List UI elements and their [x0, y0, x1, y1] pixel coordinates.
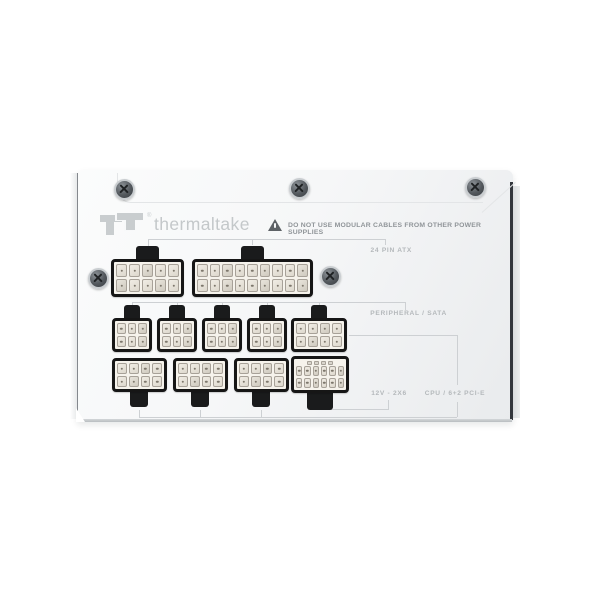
atx-group-line — [148, 239, 385, 240]
pin-grid — [239, 363, 284, 387]
pin-socket — [197, 264, 208, 277]
pin-socket — [247, 279, 258, 292]
connector-cpu-pcie-socket-1 — [112, 358, 167, 392]
sense-pin — [328, 361, 333, 365]
pin-socket — [183, 323, 192, 334]
pin-socket — [308, 323, 318, 334]
pin-socket — [142, 264, 153, 277]
pin-socket — [285, 279, 296, 292]
connector-peripheral-socket-2 — [157, 318, 197, 352]
screw-top-center — [289, 178, 310, 199]
connector-clip — [191, 391, 209, 407]
group-label-peripheral: PERIPHERAL / SATA — [327, 310, 447, 317]
cpu-tick-1 — [139, 410, 140, 417]
connector-cpu-pcie-socket-2 — [173, 358, 228, 392]
pin-socket — [129, 363, 139, 374]
connector-atx-socket-18pin — [192, 259, 313, 297]
pin-grid — [296, 366, 344, 388]
gpu12v-tick-right — [388, 400, 389, 410]
pin-socket — [129, 376, 139, 387]
pin-socket — [162, 323, 171, 334]
pin-grid — [116, 264, 179, 292]
pin-socket — [162, 336, 171, 347]
pin-socket — [117, 363, 127, 374]
pin-socket — [190, 376, 200, 387]
registered-trademark-symbol: ® — [147, 213, 151, 219]
pin-socket — [173, 336, 182, 347]
peripheral-group-line — [132, 302, 405, 303]
sense-pin — [321, 361, 326, 365]
connector-clip — [169, 305, 185, 319]
pin-socket — [152, 363, 162, 374]
pin-socket — [263, 336, 272, 347]
pin-socket — [152, 376, 162, 387]
pin-socket — [173, 323, 182, 334]
pin-socket — [251, 376, 261, 387]
pin-socket — [338, 366, 344, 376]
cpu-upper-line-drop — [457, 335, 458, 385]
pin-socket — [116, 264, 127, 277]
psu-bottom-left-chamfer — [76, 408, 85, 422]
pin-socket — [117, 323, 126, 334]
connector-cpu-pcie-socket-4 — [291, 318, 347, 352]
screw-face-left — [88, 268, 109, 289]
connector-peripheral-socket-3 — [202, 318, 242, 352]
pin-socket — [273, 336, 282, 347]
pin-socket — [297, 264, 308, 277]
pin-socket — [235, 264, 246, 277]
pin-socket — [304, 366, 310, 376]
pin-socket — [210, 279, 221, 292]
pin-socket — [178, 376, 188, 387]
pin-socket — [190, 363, 200, 374]
connector-cpu-pcie-socket-3 — [234, 358, 289, 392]
pin-socket — [263, 363, 273, 374]
pin-socket — [263, 376, 273, 387]
connector-clip — [124, 305, 140, 319]
pin-socket — [329, 366, 335, 376]
connector-clip — [311, 305, 327, 319]
pin-socket — [117, 376, 127, 387]
thermaltake-tt-logo-icon — [100, 213, 146, 236]
psu-left-edge — [70, 173, 78, 419]
pin-socket — [260, 279, 271, 292]
pin-socket — [202, 376, 212, 387]
pin-socket — [313, 378, 319, 388]
pin-socket — [274, 376, 284, 387]
pin-socket — [138, 323, 147, 334]
pin-socket — [308, 336, 318, 347]
screw-top-left — [114, 179, 135, 200]
pin-socket — [252, 336, 261, 347]
pin-grid — [178, 363, 223, 387]
pin-socket — [251, 363, 261, 374]
pin-socket — [207, 323, 216, 334]
cpu-tick-2 — [200, 410, 201, 417]
pin-socket — [304, 378, 310, 388]
connector-clip — [307, 392, 333, 410]
pin-socket — [168, 264, 179, 277]
pin-socket — [313, 366, 319, 376]
pin-socket — [228, 323, 237, 334]
atx-group-tick-3 — [385, 239, 386, 245]
pin-socket — [285, 264, 296, 277]
pin-socket — [332, 323, 342, 334]
pin-socket — [116, 279, 127, 292]
pin-socket — [296, 336, 306, 347]
pin-socket — [273, 323, 282, 334]
pin-socket — [142, 279, 153, 292]
pin-socket — [183, 336, 192, 347]
psu-right-edge — [513, 186, 520, 418]
pin-socket — [239, 376, 249, 387]
pin-socket — [128, 323, 137, 334]
pin-grid — [197, 264, 308, 292]
sense-pin-row — [296, 361, 344, 365]
pin-socket — [168, 279, 179, 292]
pin-socket — [320, 336, 330, 347]
warning-triangle-icon — [268, 219, 282, 231]
pin-socket — [141, 363, 151, 374]
psu-modular-panel: ® thermaltake DO NOT USE MODULAR CABLES … — [70, 170, 523, 425]
pin-grid — [252, 323, 282, 347]
pin-socket — [260, 264, 271, 277]
cpu-upper-line — [349, 335, 457, 336]
group-label-cpu-pcie: CPU / 6+2 PCI-E — [405, 390, 505, 397]
connector-clip — [214, 305, 230, 319]
pin-grid — [296, 323, 342, 347]
pin-socket — [320, 323, 330, 334]
screw-top-right — [465, 177, 486, 198]
pin-socket — [321, 366, 327, 376]
pin-socket — [197, 279, 208, 292]
pin-socket — [155, 264, 166, 277]
peripheral-tick-right — [405, 302, 406, 310]
cpu-group-line — [139, 417, 457, 418]
connector-atx-socket-10pin — [111, 259, 184, 297]
pin-socket — [202, 363, 212, 374]
connector-clip — [259, 305, 275, 319]
pin-socket — [117, 336, 126, 347]
pin-socket — [207, 336, 216, 347]
pin-socket — [178, 363, 188, 374]
product-photo-canvas: ® thermaltake DO NOT USE MODULAR CABLES … — [0, 0, 600, 600]
pin-socket — [129, 264, 140, 277]
pin-socket — [128, 336, 137, 347]
pin-grid — [162, 323, 192, 347]
sense-pin — [314, 361, 319, 365]
cpu-tick-right — [457, 402, 458, 417]
pin-socket — [222, 264, 233, 277]
pin-socket — [274, 363, 284, 374]
pin-socket — [296, 323, 306, 334]
pin-socket — [218, 323, 227, 334]
group-label-atx: 24 PIN ATX — [315, 247, 412, 254]
pin-socket — [210, 264, 221, 277]
sense-pin — [307, 361, 312, 365]
pin-socket — [321, 378, 327, 388]
connector-peripheral-socket-4 — [247, 318, 287, 352]
psu-bottom-edge — [78, 419, 512, 422]
connector-clip — [130, 391, 148, 407]
pin-socket — [272, 279, 283, 292]
connector-peripheral-socket-1 — [112, 318, 152, 352]
pin-socket — [129, 279, 140, 292]
atx-group-tick-2 — [252, 239, 253, 245]
pin-socket — [297, 279, 308, 292]
pin-socket — [138, 336, 147, 347]
pin-socket — [332, 336, 342, 347]
pin-socket — [141, 376, 151, 387]
pin-socket — [213, 376, 223, 387]
warning-text: DO NOT USE MODULAR CABLES FROM OTHER POW… — [288, 222, 518, 236]
pin-socket — [218, 336, 227, 347]
pin-grid — [117, 363, 162, 387]
brand-wordmark: thermaltake — [154, 214, 250, 235]
pin-socket — [296, 366, 302, 376]
screw-face-center — [320, 266, 341, 287]
pin-grid — [207, 323, 237, 347]
pin-socket — [155, 279, 166, 292]
pin-grid — [117, 323, 147, 347]
cpu-tick-3 — [261, 410, 262, 417]
pin-socket — [252, 323, 261, 334]
pin-socket — [213, 363, 223, 374]
connector-clip — [252, 391, 270, 407]
pin-socket — [329, 378, 335, 388]
pin-socket — [247, 264, 258, 277]
pin-socket — [228, 336, 237, 347]
connector-12v-2x6-socket — [291, 356, 349, 393]
pin-socket — [235, 279, 246, 292]
pin-socket — [296, 378, 302, 388]
pin-socket — [239, 363, 249, 374]
pin-socket — [338, 378, 344, 388]
pin-socket — [263, 323, 272, 334]
pin-socket — [222, 279, 233, 292]
pin-socket — [272, 264, 283, 277]
